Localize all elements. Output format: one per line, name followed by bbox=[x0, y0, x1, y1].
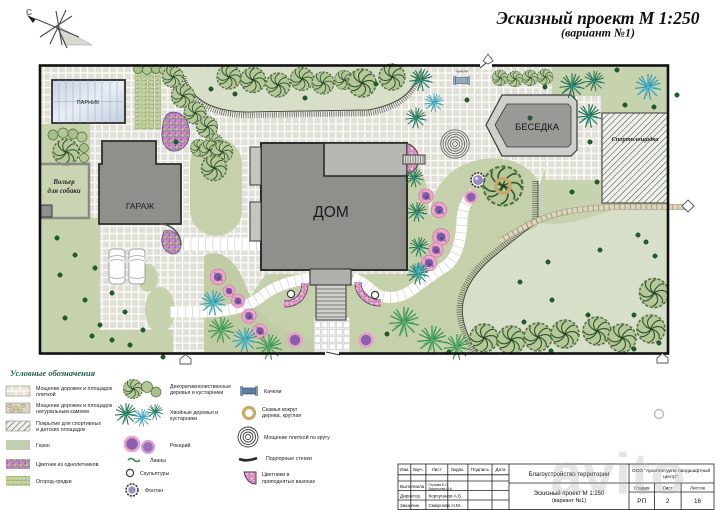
svg-text:(вариант №1): (вариант №1) bbox=[561, 26, 635, 40]
svg-text:плиткой: плиткой bbox=[36, 391, 56, 398]
svg-text:приподнятых вазонах: приподнятых вазонах bbox=[262, 479, 316, 485]
svg-text:ПАРНИК: ПАРНИК bbox=[77, 100, 101, 106]
svg-text:Корчуганов А.Б.: Корчуганов А.Б. bbox=[429, 494, 463, 499]
svg-text:Лист: Лист bbox=[432, 467, 443, 472]
svg-text:Рокарий: Рокарий bbox=[170, 442, 191, 449]
svg-text:деревья и кустарники: деревья и кустарники bbox=[170, 390, 223, 396]
svg-text:avito: avito bbox=[550, 442, 685, 507]
svg-text:Качели: Качели bbox=[264, 389, 282, 395]
svg-text:Фонтан: Фонтан bbox=[145, 488, 163, 494]
svg-text:и детских площадок: и детских площадок bbox=[36, 427, 86, 433]
svg-text:качели: качели bbox=[456, 70, 467, 74]
svg-text:Скульптуры: Скульптуры bbox=[140, 471, 169, 477]
svg-text:ГАРАЖ: ГАРАЖ bbox=[126, 201, 154, 211]
svg-text:Выполнила: Выполнила bbox=[400, 484, 425, 489]
svg-text:Мощение плиткой по кругу: Мощение плиткой по кругу bbox=[264, 434, 330, 441]
svg-text:Изм.: Изм. bbox=[399, 467, 409, 472]
svg-text:№уч.: №уч. bbox=[413, 467, 424, 472]
svg-text:С: С bbox=[26, 7, 32, 17]
svg-text:Цветники в: Цветники в bbox=[262, 472, 290, 478]
svg-text:дерева, круглая: дерева, круглая bbox=[262, 413, 301, 419]
svg-text:Директор: Директор bbox=[400, 494, 420, 499]
svg-text:Листов: Листов bbox=[690, 486, 705, 491]
svg-text:Подпись: Подпись bbox=[471, 467, 490, 472]
svg-text:16: 16 bbox=[694, 498, 702, 505]
svg-text:Подпорные стенки: Подпорные стенки bbox=[266, 456, 312, 462]
svg-text:Цветник из однолетников: Цветник из однолетников bbox=[36, 462, 99, 468]
svg-text:Хвойные деревья и: Хвойные деревья и bbox=[170, 409, 218, 416]
svg-text:кустарники: кустарники bbox=[170, 416, 197, 422]
svg-text:для собаки: для собаки bbox=[47, 187, 80, 195]
svg-text:Заказчик: Заказчик bbox=[400, 503, 420, 508]
svg-text:БЕСЕДКА: БЕСЕДКА bbox=[515, 122, 560, 133]
svg-text:№док.: №док. bbox=[451, 467, 464, 472]
svg-text:ДОМ: ДОМ bbox=[313, 204, 348, 221]
svg-text:Лианы: Лианы bbox=[150, 458, 166, 464]
svg-text:Вольер: Вольер bbox=[52, 178, 75, 186]
svg-text:натуральным камнем: натуральным камнем bbox=[36, 409, 89, 415]
svg-text:Дата: Дата bbox=[495, 467, 506, 472]
svg-text:Васильева И.К.: Васильева И.К. bbox=[429, 487, 453, 491]
svg-text:Газон: Газон bbox=[36, 443, 50, 449]
svg-text:Спортплощадка: Спортплощадка bbox=[611, 136, 659, 143]
svg-text:Смирнова Н.М..: Смирнова Н.М.. bbox=[429, 503, 463, 508]
svg-text:Огород-грядки: Огород-грядки bbox=[36, 479, 72, 485]
svg-text:Условные обозначения: Условные обозначения bbox=[10, 368, 96, 378]
